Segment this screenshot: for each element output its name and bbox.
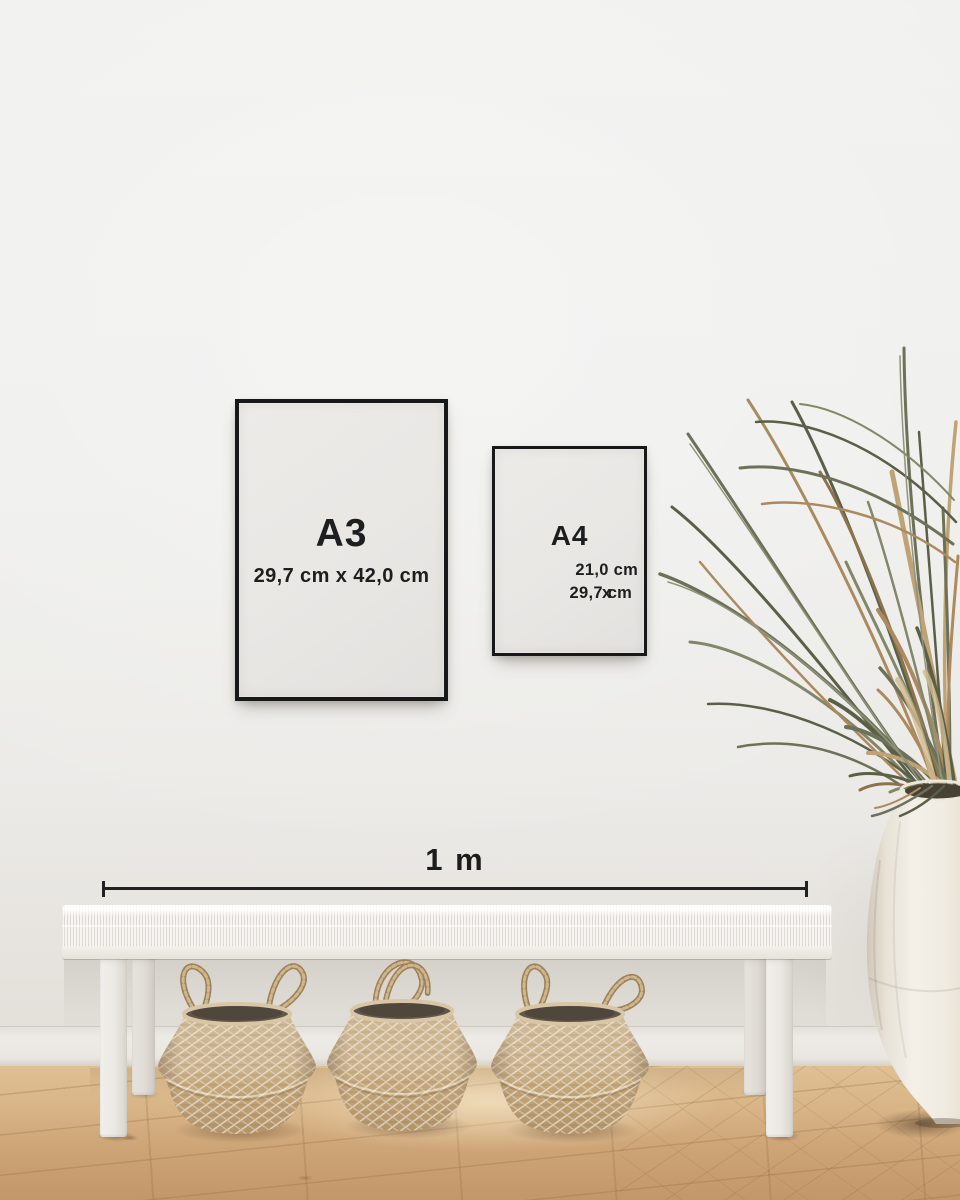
bench-leg-rear-left	[132, 955, 155, 1095]
basket-shadow	[320, 1108, 496, 1144]
basket-shadow	[148, 1112, 332, 1148]
framed-poster-a3: A3 29,7 cm x 42,0 cm	[235, 399, 448, 701]
scale-label: 1 m	[102, 842, 808, 878]
a4-dimensions-line2: 29,7 cm	[570, 582, 633, 605]
bench-front-rail	[62, 946, 832, 959]
a3-size-label: A3	[316, 512, 368, 556]
framed-poster-a4: A4 21,0 cm x 29,7 cm	[492, 446, 647, 656]
vase-shadow	[856, 1104, 960, 1144]
a4-paper: A4 21,0 cm x 29,7 cm	[495, 449, 644, 653]
bench-leg-front-left	[100, 955, 127, 1137]
a3-paper: A3 29,7 cm x 42,0 cm	[239, 403, 444, 697]
a3-dimensions: 29,7 cm x 42,0 cm	[254, 565, 430, 588]
room-scene: A3 29,7 cm x 42,0 cm A4 21,0 cm x 29,7 c…	[0, 0, 960, 1200]
bench-leg-front-right	[766, 955, 793, 1137]
bench-leg-rear-right	[744, 955, 766, 1095]
bench-floor-shadow	[90, 1068, 790, 1094]
white-woven-bench	[62, 905, 832, 959]
a4-size-label: A4	[551, 520, 588, 552]
basket-shadow	[480, 1112, 664, 1148]
measurement-scale-bar	[102, 887, 808, 890]
